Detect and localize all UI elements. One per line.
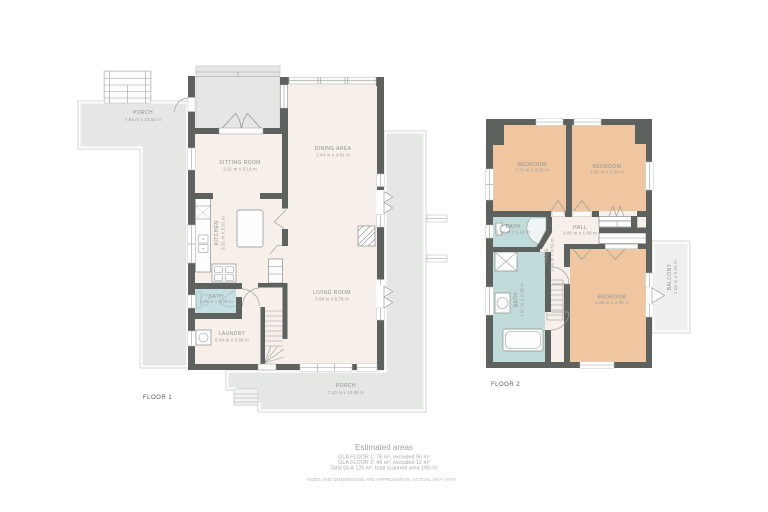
svg-text:5.44 m x 5.96 m: 5.44 m x 5.96 m	[215, 338, 249, 343]
svg-text:1.66 m x 3.51 m: 1.66 m x 3.51 m	[550, 238, 555, 272]
svg-text:1.02 m x 3.34 m: 1.02 m x 3.34 m	[673, 260, 678, 294]
svg-text:3.68 m x 3.44 m: 3.68 m x 3.44 m	[590, 170, 624, 175]
svg-text:3.88 m x 3.96 m: 3.88 m x 3.96 m	[595, 300, 629, 305]
svg-text:KITCHEN: KITCHEN	[214, 221, 220, 246]
svg-text:PORCH: PORCH	[133, 110, 153, 116]
svg-text:3.60 m x 5.76 m: 3.60 m x 5.76 m	[315, 297, 349, 302]
svg-text:SIZES AND DIMENSIONS ARE APPRO: SIZES AND DIMENSIONS ARE APPROXIMATE, AC…	[307, 477, 457, 483]
svg-text:SITTING ROOM: SITTING ROOM	[219, 160, 260, 166]
svg-text:3.51 m x 5.14 m: 3.51 m x 5.14 m	[223, 167, 257, 172]
svg-text:DINING AREA: DINING AREA	[315, 146, 352, 152]
svg-text:2.44 m x 4.91 m: 2.44 m x 4.91 m	[316, 153, 350, 158]
svg-text:1.49 m x 0.98 m: 1.49 m x 0.98 m	[199, 299, 233, 304]
svg-text:Estimated areas: Estimated areas	[355, 443, 413, 452]
svg-text:FLOOR 1: FLOOR 1	[143, 395, 172, 401]
svg-text:7.10 m x 10.06 m: 7.10 m x 10.06 m	[328, 390, 365, 395]
svg-text:Total GLA 125 m², total scanne: Total GLA 125 m², total scanned area 193…	[330, 466, 437, 472]
svg-text:1.87 m x 2.90 m: 1.87 m x 2.90 m	[520, 283, 525, 317]
svg-text:LAUNDRY: LAUNDRY	[219, 331, 246, 337]
svg-text:FLOOR 2: FLOOR 2	[491, 382, 520, 388]
svg-text:3.73 m x 3.30 m: 3.73 m x 3.30 m	[515, 168, 549, 173]
svg-text:PORCH: PORCH	[336, 383, 356, 389]
svg-text:3.51 m x 5.51 m: 3.51 m x 5.51 m	[221, 216, 226, 250]
svg-text:7.54 m x 10.82 m: 7.54 m x 10.82 m	[125, 117, 162, 122]
svg-text:LIVING ROOM: LIVING ROOM	[313, 290, 351, 296]
svg-text:1.04 m x 1.12 m: 1.04 m x 1.12 m	[496, 230, 530, 235]
svg-text:0.80 m x 1.09 m: 0.80 m x 1.09 m	[563, 231, 597, 236]
